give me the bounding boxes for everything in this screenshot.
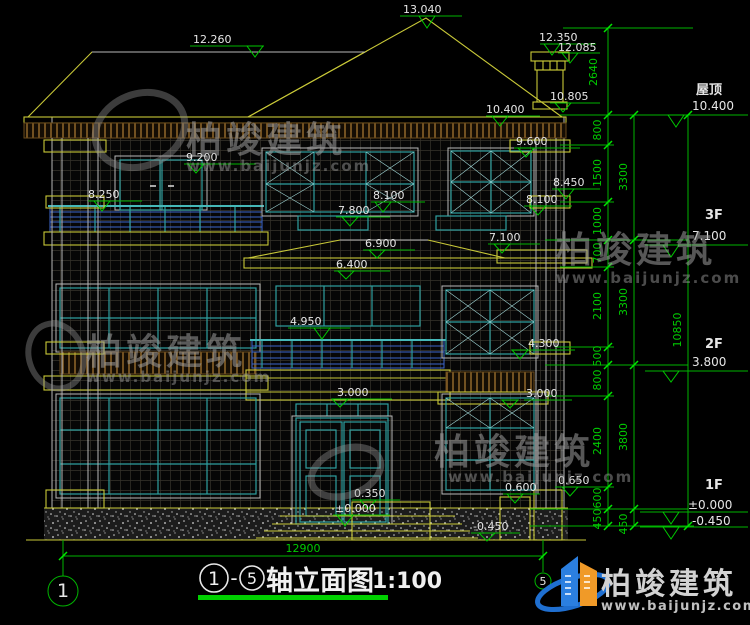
elev-f3-slab-right: 7.100 xyxy=(489,231,521,244)
left-roof xyxy=(28,52,365,117)
dim-500: 500 xyxy=(591,346,604,367)
drawing-title: 轴立面图 xyxy=(266,565,374,597)
elev-entry-floor: ±0.000 xyxy=(335,502,376,515)
watermark-site: www.baijunjz.com xyxy=(448,468,633,486)
dim-1500: 1500 xyxy=(591,159,604,187)
elev-f3-rail-right: 8.450 xyxy=(553,176,585,189)
elev-peak: 13.040 xyxy=(403,3,442,16)
dim-450a: 450 xyxy=(591,509,604,530)
title-bubble-end-number: 5 xyxy=(247,569,257,588)
dim-800b: 800 xyxy=(591,370,604,391)
label-roof-value: 10.400 xyxy=(692,99,734,113)
dim-800a: 800 xyxy=(591,120,604,141)
title-bubble-start-number: 1 xyxy=(208,568,220,590)
elev-f3-win-head-right: 8.100 xyxy=(526,193,558,206)
label-3f: 3F xyxy=(705,208,723,223)
label-1f: 1F xyxy=(705,478,723,493)
cad-elevation-screenshot: 13.040 12.260 12.350 12.085 10.805 10.40… xyxy=(0,0,750,625)
elev-f3-rail-left: 8.250 xyxy=(88,188,120,201)
label-2f: 2F xyxy=(705,337,723,352)
label-roof: 屋顶 xyxy=(696,83,722,98)
label-1f-ground: -0.450 xyxy=(692,514,731,528)
brand-logo: 柏竣建筑 www.baijunjz.com xyxy=(533,556,750,617)
elev-f2-slab-right: 3.000 xyxy=(526,387,558,400)
watermark-brand: 柏竣建筑 xyxy=(86,332,246,373)
logo-brand-text: 柏竣建筑 xyxy=(601,567,737,602)
watermark-site: www.baijunjz.com xyxy=(186,157,371,175)
watermark-site: www.baijunjz.com xyxy=(556,269,741,287)
elev-chimney-base: 10.805 xyxy=(550,90,589,103)
elevation-drawing: 13.040 12.260 12.350 12.085 10.805 10.40… xyxy=(0,0,750,625)
dim-12900: 12900 xyxy=(286,542,321,555)
logo-building-blue xyxy=(561,556,578,606)
dim-600: 600 xyxy=(591,488,604,509)
axis-bubble-right-number: 5 xyxy=(540,575,547,588)
f2-right-rail-band xyxy=(446,372,534,392)
elev-canopy-ridge: 6.900 xyxy=(365,237,397,250)
drawing-scale: 1:100 xyxy=(372,569,442,594)
title-block: 1 - 5 轴立面图 1:100 xyxy=(198,564,442,600)
logo-building-orange xyxy=(580,562,597,606)
title-underline xyxy=(198,595,388,600)
watermark-site: www.baijunjz.com xyxy=(86,368,271,386)
dim-2640: 2640 xyxy=(587,58,600,86)
label-1f-zero: ±0.000 xyxy=(688,498,732,512)
title-dash: - xyxy=(230,566,237,590)
elev-roof-eave: 10.400 xyxy=(486,103,525,116)
elev-f3-win-head-center: 8.100 xyxy=(373,189,405,202)
watermark-brand: 柏竣建筑 xyxy=(434,432,594,473)
elev-ground-center: -0.450 xyxy=(473,520,508,533)
axis-bubble-left: 1 xyxy=(48,576,78,606)
elev-f3-transom: 7.800 xyxy=(338,204,370,217)
axis-bubble-left-number: 1 xyxy=(57,580,69,602)
watermark-right: 柏竣建筑 www.baijunjz.com xyxy=(556,230,741,287)
elev-eave-trim: 9.600 xyxy=(516,135,548,148)
elev-canopy-eave: 6.400 xyxy=(336,258,368,271)
watermark-brand: 柏竣建筑 xyxy=(186,120,346,161)
dim-10850: 10850 xyxy=(671,313,684,348)
dim-3300b: 3300 xyxy=(617,288,630,316)
elev-left-ridge: 12.260 xyxy=(193,33,232,46)
elev-f2-rail: 4.950 xyxy=(290,315,322,328)
label-2f-value: 3.800 xyxy=(692,355,726,369)
dim-3300a: 3300 xyxy=(617,163,630,191)
dim-450b: 450 xyxy=(617,514,630,535)
dim-2100: 2100 xyxy=(591,292,604,320)
elev-f2-slab-center: 3.000 xyxy=(337,386,369,399)
elev-chimney-cap: 12.085 xyxy=(558,41,597,54)
dim-3800: 3800 xyxy=(617,423,630,451)
elev-f2-sill-right: 4.300 xyxy=(528,337,560,350)
watermark-brand: 柏竣建筑 xyxy=(556,230,716,271)
logo-site-text: www.baijunjz.com xyxy=(601,599,750,614)
